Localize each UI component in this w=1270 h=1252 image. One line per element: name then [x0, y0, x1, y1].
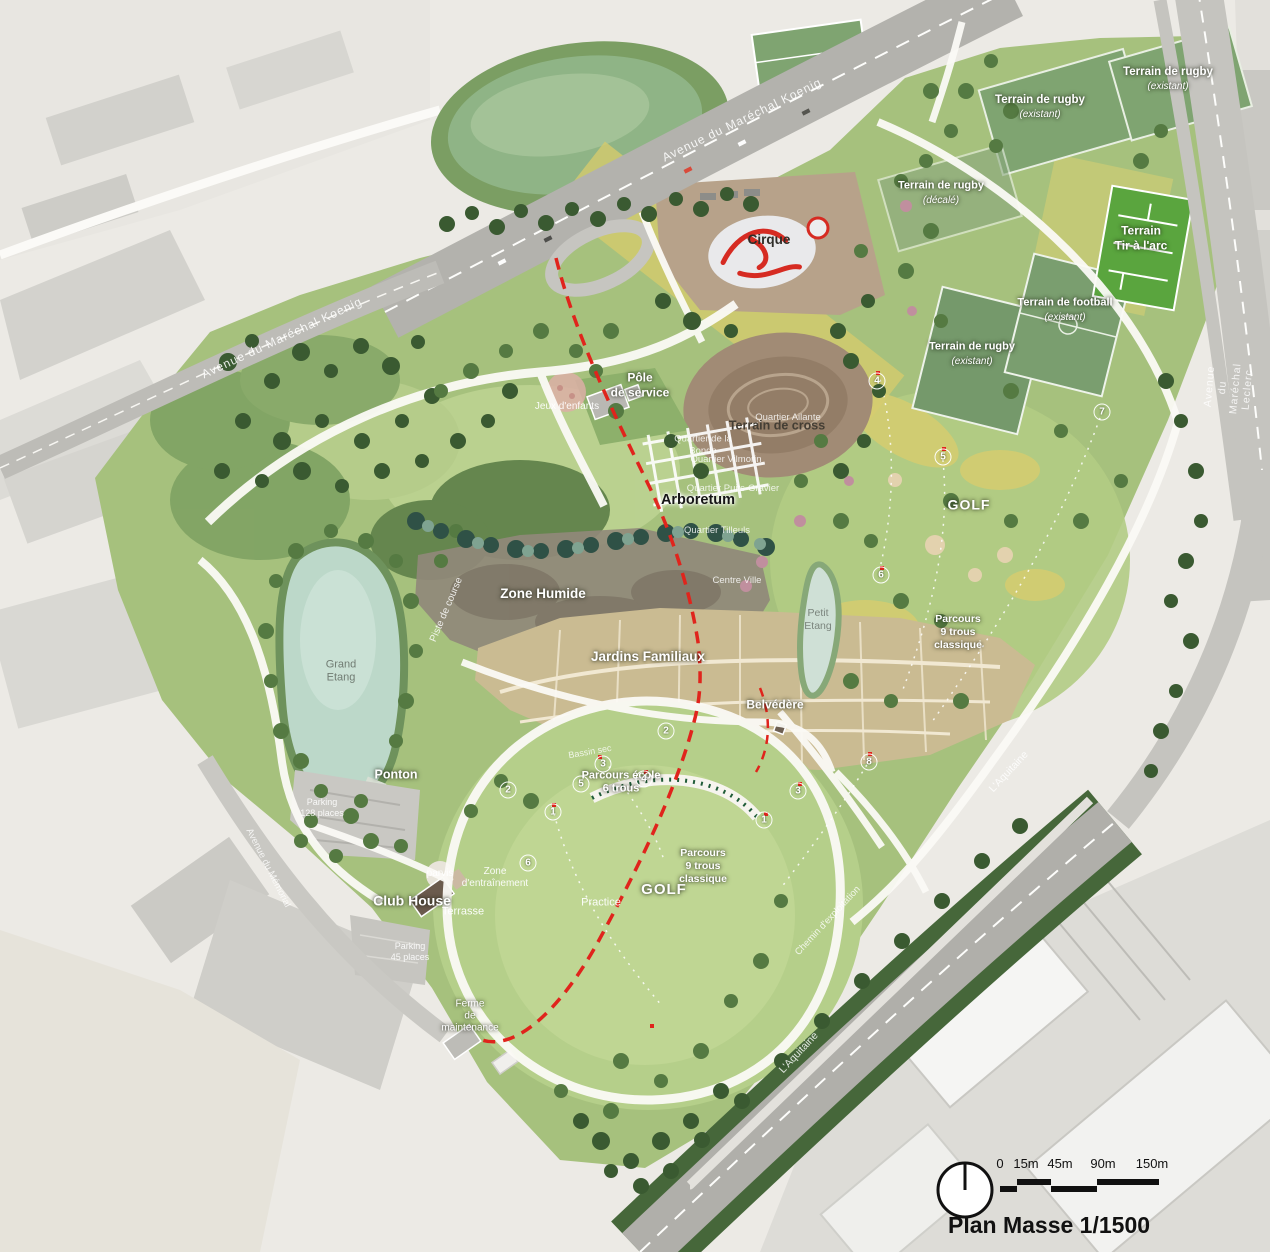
cirque-area — [655, 172, 885, 315]
scale-tick-0: 0 — [996, 1156, 1003, 1171]
plan-title: Plan Masse 1/1500 — [948, 1212, 1150, 1239]
masterplan-canvas: 0 15m 45m 90m 150m Avenue du Maréchal Ko… — [0, 0, 1270, 1252]
scale-tick-90: 90m — [1090, 1156, 1115, 1171]
scale-tick-15: 15m — [1013, 1156, 1038, 1171]
scale-tick-45: 45m — [1047, 1156, 1072, 1171]
scale-tick-150: 150m — [1136, 1156, 1169, 1171]
aerial-map-art: 0 15m 45m 90m 150m — [0, 0, 1270, 1252]
north-arrow-icon — [938, 1163, 992, 1217]
